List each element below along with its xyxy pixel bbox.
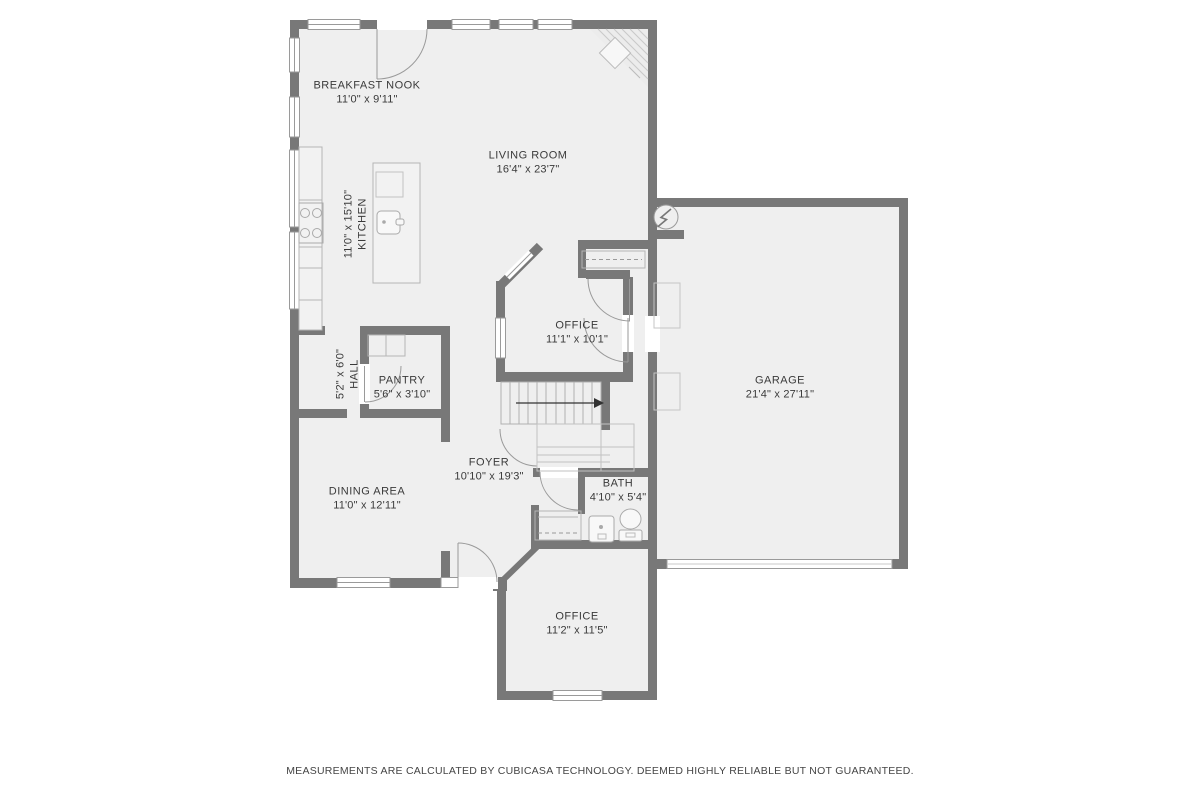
bath-sink xyxy=(589,516,614,542)
kitchen-counter xyxy=(299,147,322,330)
garage-door xyxy=(667,560,892,569)
kitchen-island xyxy=(373,163,420,283)
measurement-disclaimer: MEASUREMENTS ARE CALCULATED BY CUBICASA … xyxy=(0,765,1200,777)
floor-plan-canvas xyxy=(0,0,1200,800)
toilet xyxy=(619,509,642,541)
room-floor-fills xyxy=(294,24,905,696)
electrical-panel-icon xyxy=(654,205,678,229)
floor-plan-page: BREAKFAST NOOK 11'0" x 9'11" LIVING ROOM… xyxy=(0,0,1200,800)
